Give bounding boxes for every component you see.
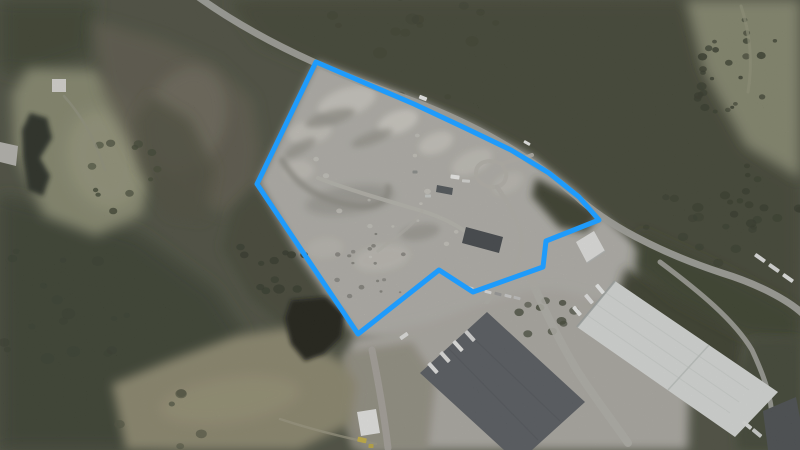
- grain-light: [0, 0, 800, 450]
- aerial-map-canvas[interactable]: [0, 0, 800, 450]
- screenshot-root: [0, 0, 800, 450]
- photo-grain-overlay: [0, 0, 800, 450]
